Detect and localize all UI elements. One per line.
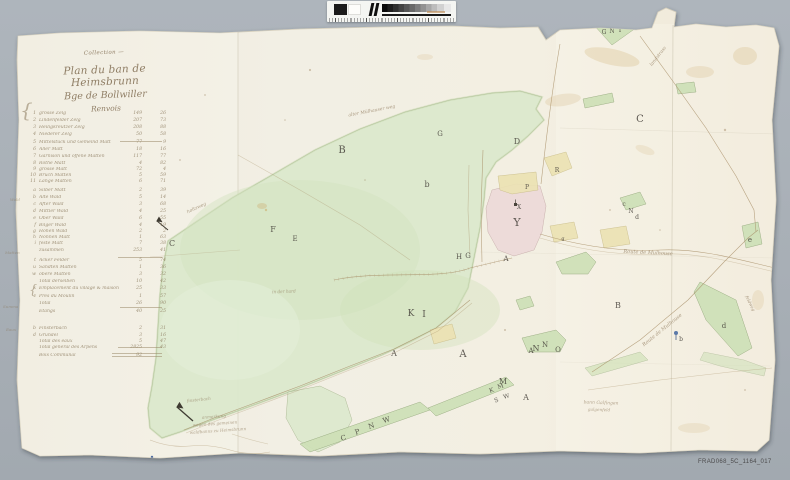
margin-note: Summa xyxy=(3,304,18,309)
index-row: bAlte Wald514 xyxy=(28,195,168,202)
parcel-letter: B xyxy=(615,301,621,310)
index-row: 4Niederer Zelg5058 xyxy=(28,132,168,139)
index-row-ca: 208 xyxy=(116,125,142,131)
parcel-letter: A xyxy=(458,349,467,360)
index-row-ca: 4 xyxy=(116,209,142,215)
archival-map-scan: BDGCCFEbHGKIAAAYNMABdegcNdGNTCPNWKMSWANO… xyxy=(0,0,790,480)
index-row: eOber Wald655 xyxy=(28,216,168,223)
margin-note: Wald xyxy=(10,197,20,202)
index-row-cb: 41 xyxy=(148,248,166,254)
index-row-ca: 1 xyxy=(116,265,142,271)
index-row-cb: 31 xyxy=(148,326,166,332)
index-row-lbl: Niederer Zelg xyxy=(39,132,119,138)
index-row-cb: 32 xyxy=(148,272,166,278)
parcel-letter: R xyxy=(555,167,560,174)
index-row-cb: 39 xyxy=(148,188,166,194)
index-row: tAcker Felder574 xyxy=(28,258,168,265)
index-list: 1grosse Zelg149262Lindenfelder Zelg20773… xyxy=(28,0,168,380)
index-row-cb: 68 xyxy=(148,202,166,208)
map-annotation: bann Galfingen xyxy=(584,399,619,406)
index-row-ca: 5 xyxy=(116,195,142,201)
index-row-no: 6 xyxy=(28,147,36,153)
index-row-ca: 2 xyxy=(116,188,142,194)
index-row-cb: 42 xyxy=(148,279,166,285)
index-row-lbl: Bois Communal xyxy=(39,353,119,359)
parcel-letter: Y xyxy=(512,216,521,229)
index-rule xyxy=(120,141,162,142)
index-row-no: b xyxy=(28,195,36,201)
index-row-lbl: Mittelstück und Gemeind Matt xyxy=(39,140,119,146)
index-row-cb: 25 xyxy=(148,209,166,215)
index-row-no: a xyxy=(28,188,36,194)
index-row-ca: 6 xyxy=(116,216,142,222)
index-row-lbl: Sandten Matten xyxy=(39,265,119,271)
margin-note: Matten xyxy=(5,250,20,255)
parcel-letter: N xyxy=(542,341,548,349)
index-row-cb: 36 xyxy=(148,265,166,271)
parcel-letter: C xyxy=(169,239,175,248)
parcel-letter: N xyxy=(609,28,614,35)
index-row-cb: 25 xyxy=(148,309,166,315)
parcel-letter: I xyxy=(422,310,426,320)
index-row-no: i xyxy=(28,241,36,247)
index-row-cb: 43 xyxy=(148,345,166,351)
index-rule xyxy=(120,307,162,308)
index-row: aSilber Matt239 xyxy=(28,188,168,195)
index-row-lbl: Etangs xyxy=(39,309,119,315)
index-row-lbl: Alte Wald xyxy=(39,195,119,201)
index-row: zPrés du Moulin157 xyxy=(28,294,168,301)
index-row-ca: 3 xyxy=(116,272,142,278)
parcel-letter: A xyxy=(390,349,397,358)
index-row-cb: 77 xyxy=(148,154,166,160)
index-row-lbl: Aller Matt xyxy=(39,147,119,153)
margin-note: Eaux xyxy=(6,327,16,332)
index-row: Etangs4025 xyxy=(28,309,168,316)
parcel-letter: F xyxy=(270,225,276,234)
index-row-lbl: Emplacement du village & maisons xyxy=(39,286,119,292)
index-row-no: b xyxy=(28,326,36,332)
parcel-letter: B xyxy=(338,145,345,156)
index-row: 11Lange Matten671 xyxy=(28,179,168,186)
index-row-lbl: Prés du Moulin xyxy=(39,294,119,300)
index-row-no: d xyxy=(28,209,36,215)
index-row-ca: 2825 xyxy=(116,345,142,351)
index-row-no: w xyxy=(28,272,36,278)
parcel-letter: X xyxy=(517,204,522,211)
parcel-letter: e xyxy=(748,236,752,244)
index-row-cb: 38 xyxy=(148,241,166,247)
index-row-lbl: Lange Matten xyxy=(39,179,119,185)
calibration-black-strip xyxy=(382,14,451,17)
index-row-lbl: Lindenfelder Zelg xyxy=(39,118,119,124)
index-row-ca: 6 xyxy=(116,179,142,185)
index-row-ca: 7 xyxy=(116,241,142,247)
map-annotation: in der hard xyxy=(272,289,296,295)
index-row-ca: 253 xyxy=(116,248,142,254)
index-rule xyxy=(112,356,162,357)
index-row-ca: 117 xyxy=(116,154,142,160)
index-row-ca: 40 xyxy=(116,309,142,315)
index-row-cb: 58 xyxy=(148,132,166,138)
parcel-letter: N xyxy=(533,344,540,353)
index-row-cb: 74 xyxy=(148,258,166,264)
index-row-ca: 25 xyxy=(116,286,142,292)
parcel-letter: b xyxy=(424,180,429,189)
parcel-letter: C xyxy=(636,114,644,125)
margin-note: { xyxy=(29,283,37,298)
index-row-lbl: feste Matt xyxy=(39,241,119,247)
index-row-lbl: obere Matten xyxy=(39,272,119,278)
index-row-cb: 57 xyxy=(148,294,166,300)
index-row-ca: 207 xyxy=(116,118,142,124)
index-row-no: c xyxy=(28,202,36,208)
calibration-ruler-ticks xyxy=(329,18,454,22)
index-row-cb: 14 xyxy=(148,195,166,201)
parcel-letter: G xyxy=(465,252,471,260)
parcel-letter: G xyxy=(437,130,443,138)
index-row-lbl: Silber Matt xyxy=(39,188,119,194)
index-row-cb: 73 xyxy=(148,118,166,124)
calibration-black-patch xyxy=(334,4,347,15)
index-row: bFinsterbach231 xyxy=(28,326,168,333)
index-row: 1grosse Zelg14926 xyxy=(28,111,168,118)
index-row-ca: 18 xyxy=(116,147,142,153)
index-row-lbl: Total derselben xyxy=(39,279,119,285)
index-row: wobere Matten332 xyxy=(28,272,168,279)
parcel-letter: T xyxy=(618,27,622,34)
index-row-cb: 55 xyxy=(148,216,166,222)
index-row: Bois Communal92 xyxy=(28,353,168,360)
index-row-ca: 50 xyxy=(116,132,142,138)
index-row-ca: 2 xyxy=(116,326,142,332)
index-row-no: 3 xyxy=(28,125,36,131)
index-row-lbl: After Wald xyxy=(39,202,119,208)
parcel-letter: A xyxy=(522,393,529,402)
calibration-mark xyxy=(373,3,378,16)
parcel-letter: d xyxy=(635,214,639,221)
index-row: uSandten Matten136 xyxy=(28,265,168,272)
parcel-letter: A xyxy=(527,347,534,355)
index-row: 2Lindenfelder Zelg20773 xyxy=(28,118,168,125)
map-annotation: galgenfeld xyxy=(588,407,611,413)
index-row: xEmplacement du village & maisons2533 xyxy=(28,286,168,293)
index-row-ca: 1 xyxy=(116,294,142,300)
parcel-letter: d xyxy=(722,322,727,330)
index-rule xyxy=(112,353,162,354)
parcel-letter: D xyxy=(514,137,520,146)
index-row-cb: 33 xyxy=(148,286,166,292)
calibration-white-patch xyxy=(348,4,361,15)
index-row-lbl: Ober Wald xyxy=(39,216,119,222)
index-row-cb: 88 xyxy=(148,125,166,131)
margin-note: { xyxy=(20,98,33,122)
index-row: zusammen25341 xyxy=(28,248,168,255)
index-row: Total derselben1042 xyxy=(28,279,168,286)
parcel-letter: N xyxy=(628,208,633,215)
reference-code: FRAD068_5C_1164_017 xyxy=(698,459,772,465)
index-row-no: t xyxy=(28,258,36,264)
parcel-letter: K xyxy=(408,309,415,319)
index-row-lbl: Mittler Wald xyxy=(39,209,119,215)
index-row-ca: 3 xyxy=(116,202,142,208)
index-row-no: u xyxy=(28,265,36,271)
index-rule xyxy=(118,347,162,348)
parcel-letter: b xyxy=(679,336,683,343)
index-row-lbl: grosse Zelg xyxy=(39,111,119,117)
index-row-lbl: Total général des Arpens xyxy=(39,345,119,351)
index-row-no: 5 xyxy=(28,140,36,146)
index-rule xyxy=(118,257,162,258)
index-row: 7Garnison und offene Matten11777 xyxy=(28,154,168,161)
parcel-letter: E xyxy=(292,235,297,243)
index-row-no: 11 xyxy=(28,179,36,185)
index-row-lbl: Heiligkreutzer Zelg xyxy=(39,125,119,131)
index-row-lbl: Finsterbach xyxy=(39,326,119,332)
index-row-no: e xyxy=(28,216,36,222)
index-row-ca: 149 xyxy=(116,111,142,117)
index-row: cAfter Wald368 xyxy=(28,202,168,209)
index-row: ifeste Matt738 xyxy=(28,241,168,248)
color-calibration-bar xyxy=(327,1,456,22)
index-row-ca: 10 xyxy=(116,279,142,285)
index-row-cb: 71 xyxy=(148,179,166,185)
index-row-lbl: Acker Felder xyxy=(39,258,119,264)
index-row-cb: 26 xyxy=(148,111,166,117)
index-row: 3Heiligkreutzer Zelg20888 xyxy=(28,125,168,132)
index-row-cb: 16 xyxy=(148,147,166,153)
index-row-no: 4 xyxy=(28,132,36,138)
parcel-letter: O xyxy=(555,346,561,354)
parcel-letter: G xyxy=(602,29,607,36)
index-row: 6Aller Matt1816 xyxy=(28,147,168,154)
index-row-lbl: zusammen xyxy=(39,248,119,254)
index-row-ca: 5 xyxy=(116,258,142,264)
index-row-lbl: Garnison und offene Matten xyxy=(39,154,119,160)
parcel-letter: P xyxy=(525,184,529,191)
index-row: dMittler Wald425 xyxy=(28,209,168,216)
index-row-no: 7 xyxy=(28,154,36,160)
calibration-fine-print xyxy=(427,11,445,13)
index-row-lbl: Total xyxy=(39,301,119,307)
parcel-letter: A xyxy=(502,255,509,263)
parcel-letter: H xyxy=(456,253,462,261)
